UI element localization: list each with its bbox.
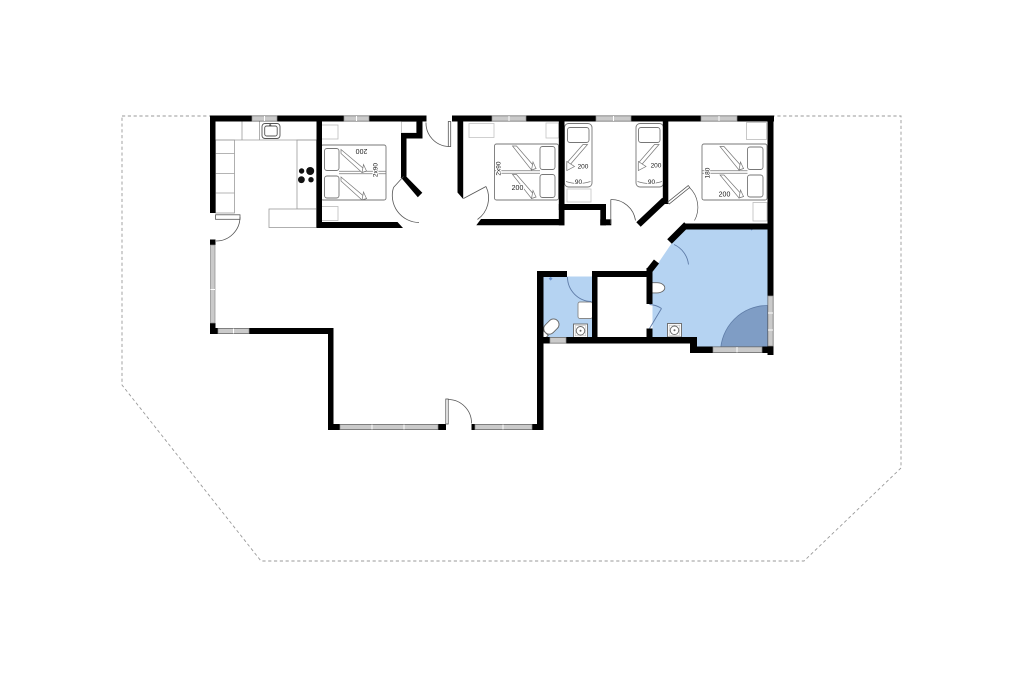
svg-text:200: 200	[719, 192, 731, 199]
svg-text:200: 200	[356, 147, 368, 154]
svg-text:180: 180	[705, 167, 712, 178]
svg-text:2x90: 2x90	[373, 163, 380, 177]
svg-text:90: 90	[648, 179, 656, 186]
svg-text:2x90: 2x90	[496, 161, 503, 175]
svg-text:90: 90	[575, 179, 583, 186]
svg-text:200: 200	[578, 164, 589, 171]
svg-text:200: 200	[651, 163, 662, 170]
svg-text:200: 200	[512, 185, 524, 192]
